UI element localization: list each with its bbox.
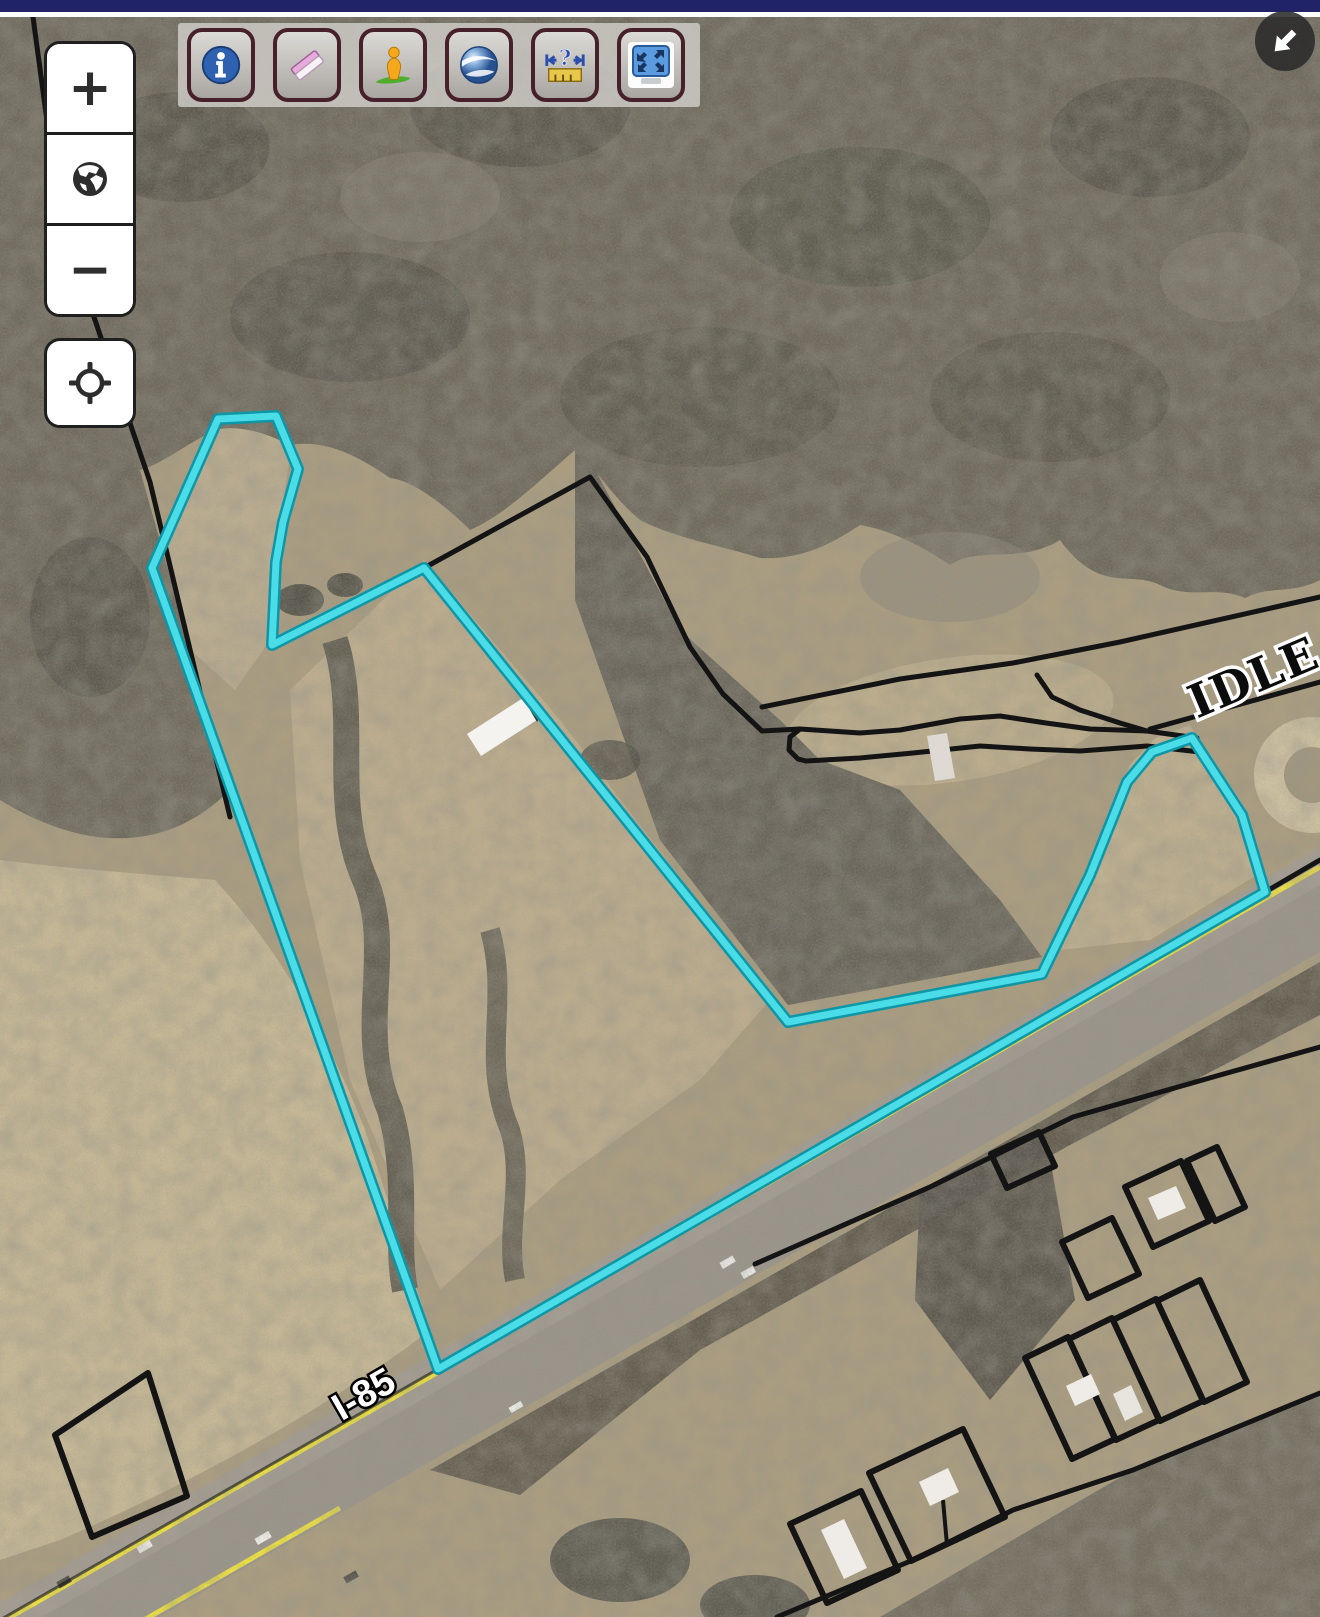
arrow-southwest-icon [1263,19,1307,63]
erase-button[interactable] [273,28,341,102]
map-canvas[interactable]: I-85 IDLE [0,17,1320,1617]
google-earth-button[interactable] [445,28,513,102]
map-toolbar: ? [178,23,700,107]
crosshair-icon [67,360,113,406]
eraser-icon [284,42,330,88]
world-extent-button[interactable] [47,135,133,226]
zoom-out-button[interactable]: − [47,226,133,314]
top-navy-bar [0,0,1320,12]
collapse-panel-button[interactable] [1255,11,1315,71]
zoom-in-button[interactable]: + [47,44,133,135]
fullscreen-button[interactable] [617,28,685,102]
identify-button[interactable] [187,28,255,102]
street-view-button[interactable] [359,28,427,102]
zoom-control: + − [44,41,136,317]
earth-icon [456,42,502,88]
info-icon [198,42,244,88]
measure-icon: ? [542,42,588,88]
fullscreen-icon [626,40,676,90]
locate-button[interactable] [44,338,136,428]
pegman-icon [370,42,416,88]
globe-icon [68,157,112,201]
measure-glyph: ? [559,45,571,70]
measure-button[interactable]: ? [531,28,599,102]
aerial-map: I-85 IDLE [0,17,1320,1617]
minus-icon: − [68,244,112,296]
plus-icon: + [68,62,112,114]
texture-fine [0,17,1320,1617]
